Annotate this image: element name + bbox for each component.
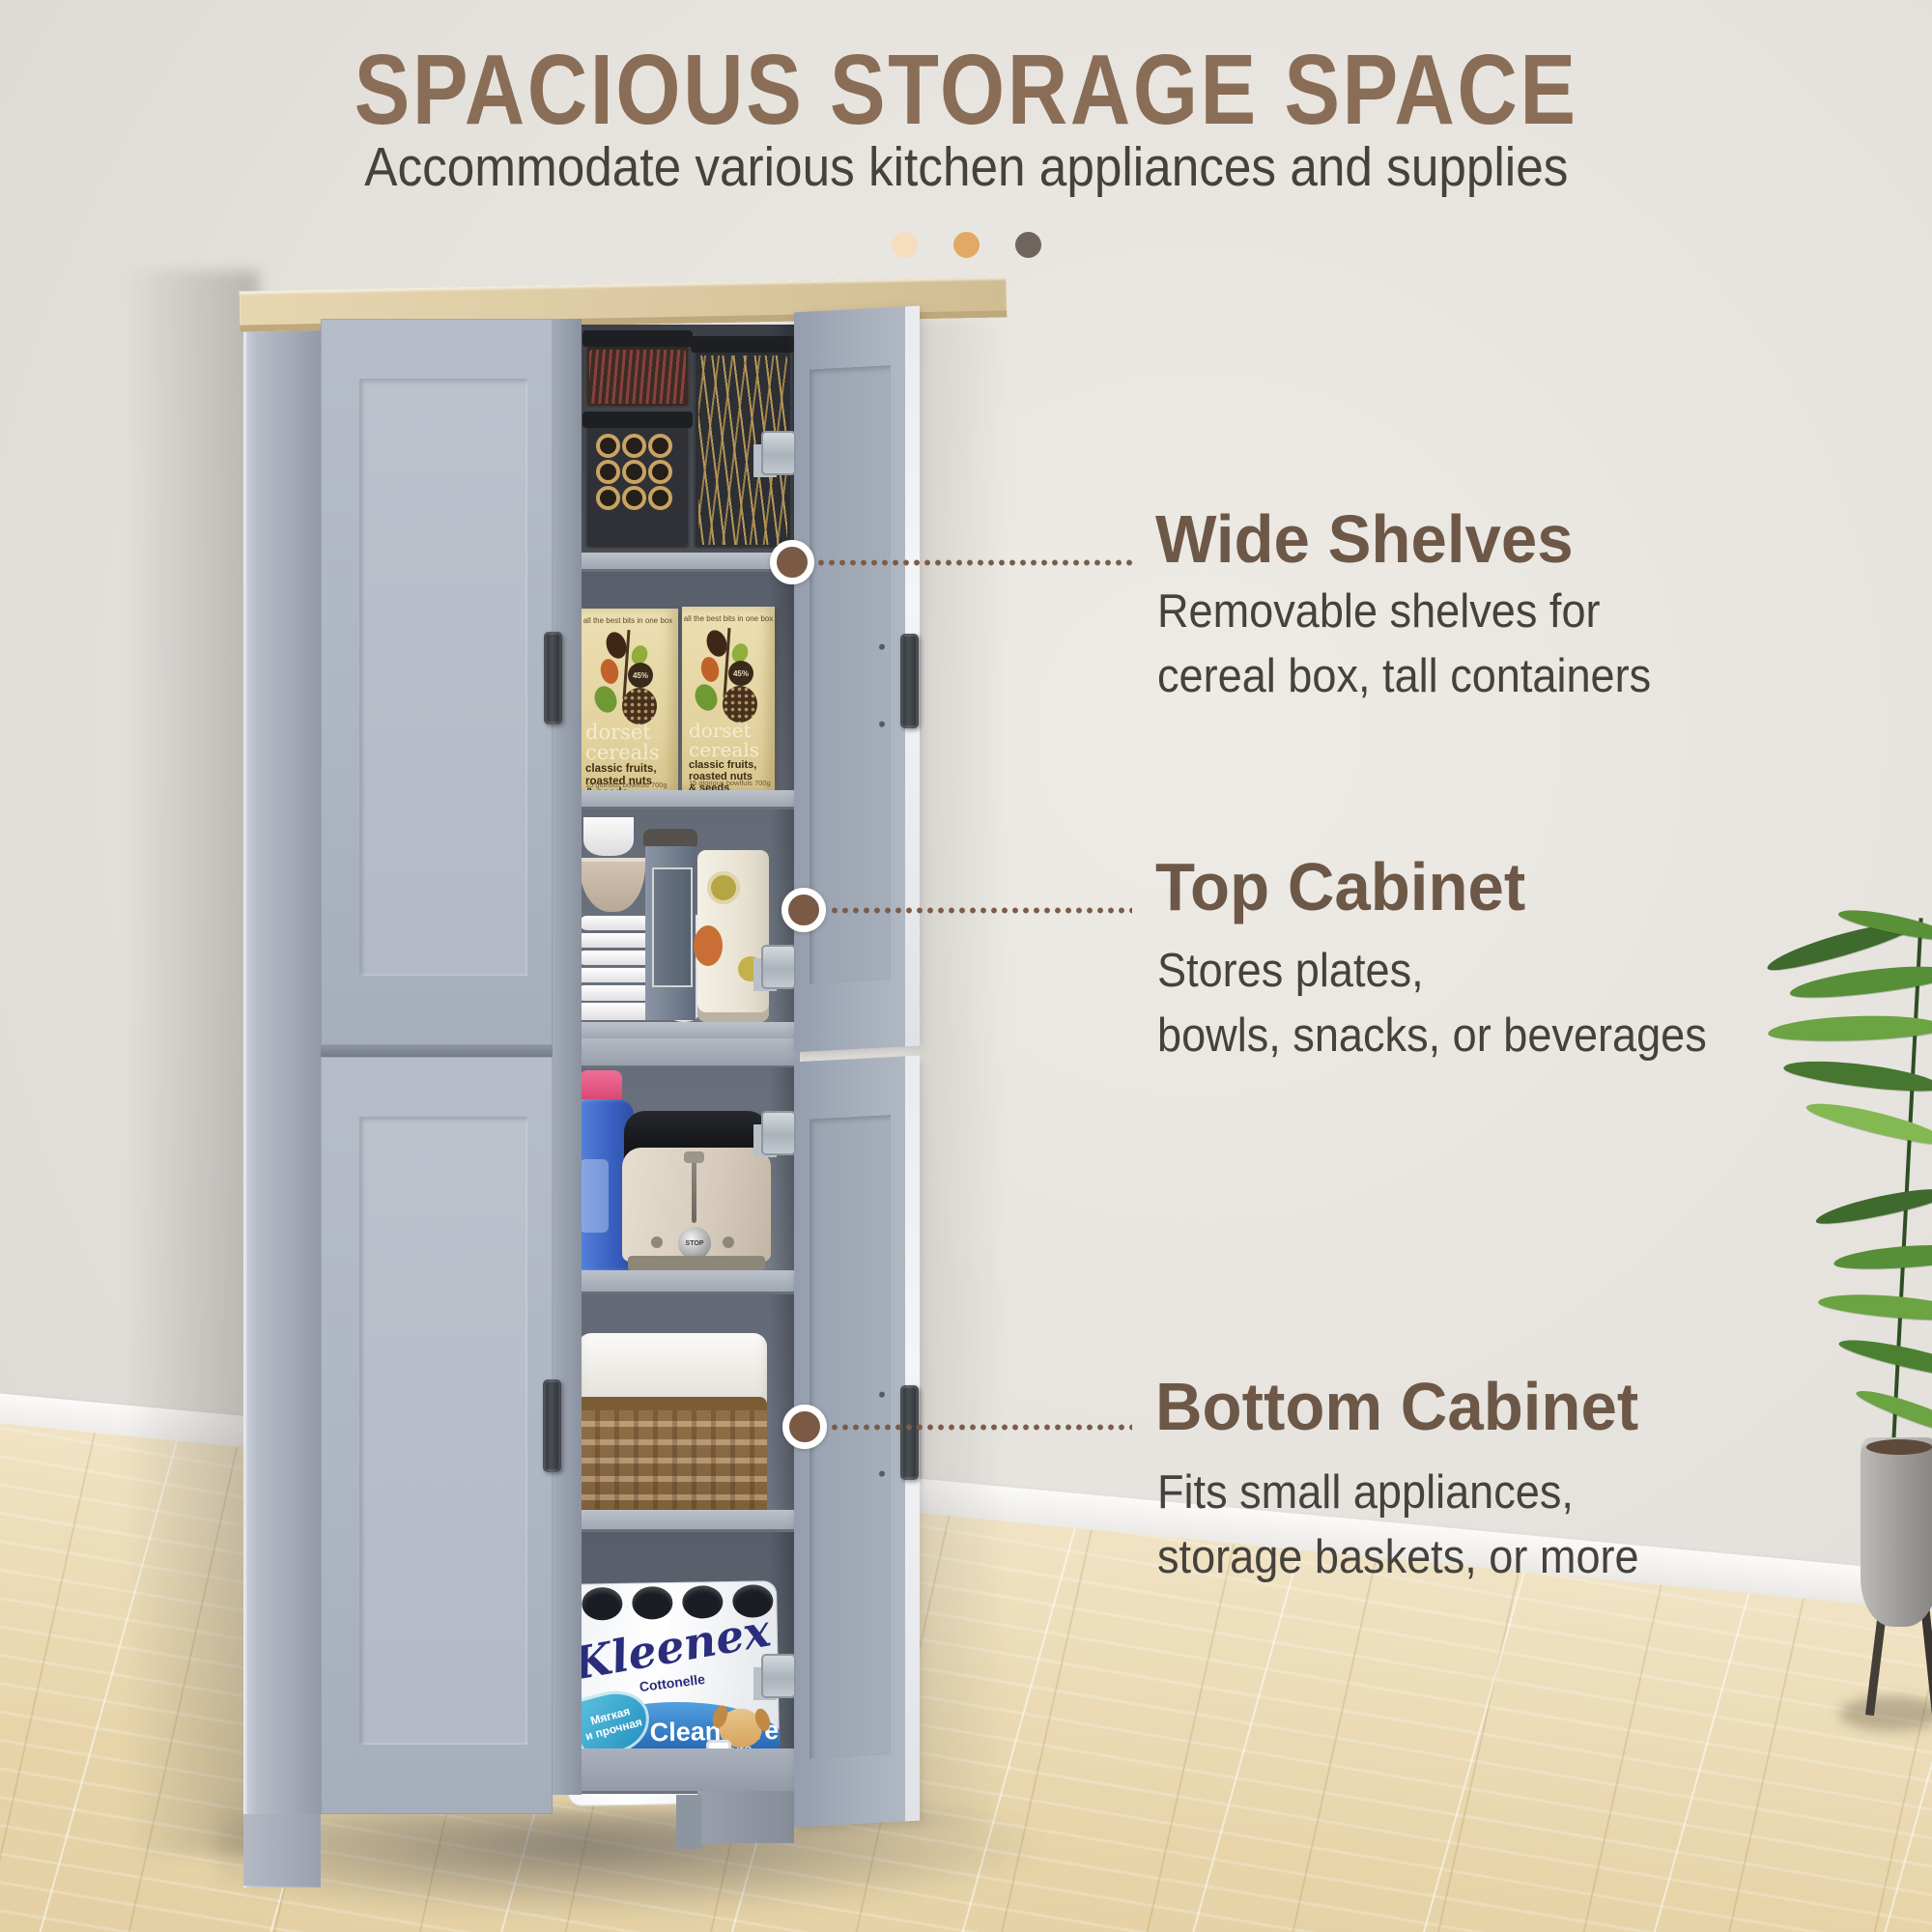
door-handle <box>544 632 562 724</box>
cereal-top-note: all the best bits in one box <box>578 616 678 625</box>
granola-photo <box>622 688 657 724</box>
leader-line <box>831 1423 1132 1432</box>
detergent-label <box>580 1159 609 1233</box>
shelf-edge <box>582 1510 800 1529</box>
toaster-lever-slot <box>692 1155 696 1223</box>
callout-marker-top-cabinet <box>781 888 826 932</box>
canister-orange-motif <box>694 925 723 966</box>
door-panel <box>810 365 891 983</box>
toaster-base <box>628 1256 765 1271</box>
basket-rim <box>576 1397 767 1410</box>
plant-leaf <box>1788 960 1932 1004</box>
interior-shade <box>769 1291 794 1510</box>
product-infographic: all the best bits in one box 45% dorsetc… <box>0 0 1932 1932</box>
cabinet-bottom-support <box>697 1791 794 1843</box>
shelf-edge <box>582 553 800 569</box>
plant-leaf <box>1837 1332 1932 1383</box>
door-panel <box>359 379 527 976</box>
cabinet-bottom-board <box>582 1748 802 1791</box>
plant-leaf <box>1768 1013 1932 1043</box>
hinge <box>761 1654 796 1698</box>
cereal-box: all the best bits in one box 45% dorsetc… <box>682 607 775 790</box>
cabinet-floor-shadow <box>217 1808 1038 1915</box>
canister-olive-motif <box>707 871 740 904</box>
door-handle <box>900 1385 919 1480</box>
tin-label <box>652 867 693 987</box>
shelf-edge <box>582 1270 800 1292</box>
plant-leaf <box>1813 1181 1932 1229</box>
callout-title-top-cabinet: Top Cabinet <box>1155 848 1525 925</box>
wafer-roll <box>596 434 620 458</box>
toaster-body: STOP <box>622 1148 771 1262</box>
leaf-orange <box>598 657 620 685</box>
cabinet-left-side-panel <box>243 301 321 1888</box>
cereal-footnote: 15 glorious bowlfuls 700g <box>585 781 668 789</box>
container-lid <box>582 412 693 428</box>
callout-marker-wide-shelves <box>770 540 814 584</box>
accent-dot-tan <box>953 232 980 258</box>
cabinet-center-stile <box>553 319 582 1795</box>
wafer-roll <box>622 486 646 510</box>
interior-shade <box>769 1065 794 1270</box>
callout-title-wide-shelves: Wide Shelves <box>1155 500 1574 578</box>
page-subtitle: Accommodate various kitchen appliances a… <box>0 135 1932 199</box>
hinge <box>761 1111 796 1155</box>
callout-title-bottom-cabinet: Bottom Cabinet <box>1155 1368 1638 1445</box>
small-bowl <box>583 817 634 856</box>
detergent-cap <box>580 1070 622 1103</box>
pasta-container <box>585 330 690 408</box>
roll-tube <box>632 1586 673 1620</box>
callout-desc-bottom-cabinet: Fits small appliances, storage baskets, … <box>1157 1461 1639 1590</box>
toaster-button <box>651 1236 663 1248</box>
red-pasta <box>589 350 686 404</box>
canister-olive-motif <box>738 956 763 981</box>
percent-badge: 45% <box>728 661 753 686</box>
leaf-olive <box>692 681 722 714</box>
accent-dot-gray <box>1015 232 1041 258</box>
closed-door-top <box>321 319 553 1045</box>
plant-pot <box>1861 1437 1932 1627</box>
desc-line: bowls, snacks, or beverages <box>1157 1004 1707 1068</box>
cabinet-partition-foot <box>676 1795 701 1849</box>
wall-shadow <box>920 319 1007 1826</box>
desc-line: Stores plates, <box>1157 939 1707 1004</box>
accent-dot-light <box>892 232 918 258</box>
cabinet-left-foot <box>243 1814 321 1886</box>
wafer-roll <box>596 486 620 510</box>
callout-marker-bottom-cabinet <box>782 1405 827 1449</box>
plant-stem <box>1890 918 1922 1458</box>
roll-tube <box>582 1587 623 1621</box>
door-panel <box>359 1117 527 1745</box>
percent-badge: 45% <box>628 663 653 688</box>
callout-desc-wide-shelves: Removable shelves for cereal box, tall c… <box>1157 580 1651 709</box>
wafer-roll <box>622 460 646 484</box>
cereal-brand: dorsetcereals <box>689 721 759 759</box>
desc-line: Fits small appliances, <box>1157 1461 1639 1525</box>
page-title: SPACIOUS STORAGE SPACE <box>0 33 1932 147</box>
shelf-edge <box>582 1022 800 1038</box>
tea-tin <box>645 846 696 1020</box>
desc-line: cereal box, tall containers <box>1157 644 1651 709</box>
container-lid <box>582 330 693 347</box>
hinge <box>761 945 796 989</box>
wicker-basket <box>576 1397 767 1519</box>
cereal-variant: classic fruits,roasted nuts& seeds <box>689 759 756 794</box>
leader-line <box>817 558 1132 567</box>
door-seam <box>321 1045 553 1057</box>
toaster-button <box>723 1236 734 1248</box>
toaster-knob: STOP <box>678 1227 711 1260</box>
callout-desc-top-cabinet: Stores plates, bowls, snacks, or beverag… <box>1157 939 1707 1068</box>
toaster-lever <box>684 1151 704 1163</box>
closed-door-bottom <box>321 1057 553 1814</box>
plant-leaf <box>1782 1055 1932 1096</box>
wafer-roll <box>596 460 620 484</box>
door-handle <box>900 634 919 728</box>
cereal-top-note: all the best bits in one box <box>682 614 775 623</box>
desc-line: storage baskets, or more <box>1157 1525 1639 1590</box>
accent-dots <box>0 232 1932 258</box>
leaf-olive <box>591 683 621 716</box>
canister <box>697 850 769 1022</box>
cabinet-divider <box>582 1038 800 1065</box>
granola-photo <box>723 686 757 723</box>
container-lid <box>691 336 795 353</box>
door-handle <box>543 1379 561 1472</box>
wafer-roll <box>648 486 672 510</box>
hinge <box>761 431 796 475</box>
cereal-box: all the best bits in one box 45% dorsetc… <box>578 609 678 792</box>
plant-leaf <box>1817 1290 1932 1324</box>
wafer-roll <box>648 460 672 484</box>
plant-leaf <box>1833 1241 1932 1273</box>
leader-line <box>831 906 1132 915</box>
wafer-roll <box>622 434 646 458</box>
cereal-footnote: 15 glorious bowlfuls 700g <box>689 779 771 787</box>
rolled-wafers-container <box>585 412 690 549</box>
leaf-orange <box>698 655 721 683</box>
wall-shadow <box>124 270 259 1855</box>
pot-soil <box>1866 1439 1932 1455</box>
wafer-roll <box>648 434 672 458</box>
desc-line: Removable shelves for <box>1157 580 1651 644</box>
shelf-edge <box>582 790 800 807</box>
cereal-brand: dorsetcereals <box>585 723 660 763</box>
